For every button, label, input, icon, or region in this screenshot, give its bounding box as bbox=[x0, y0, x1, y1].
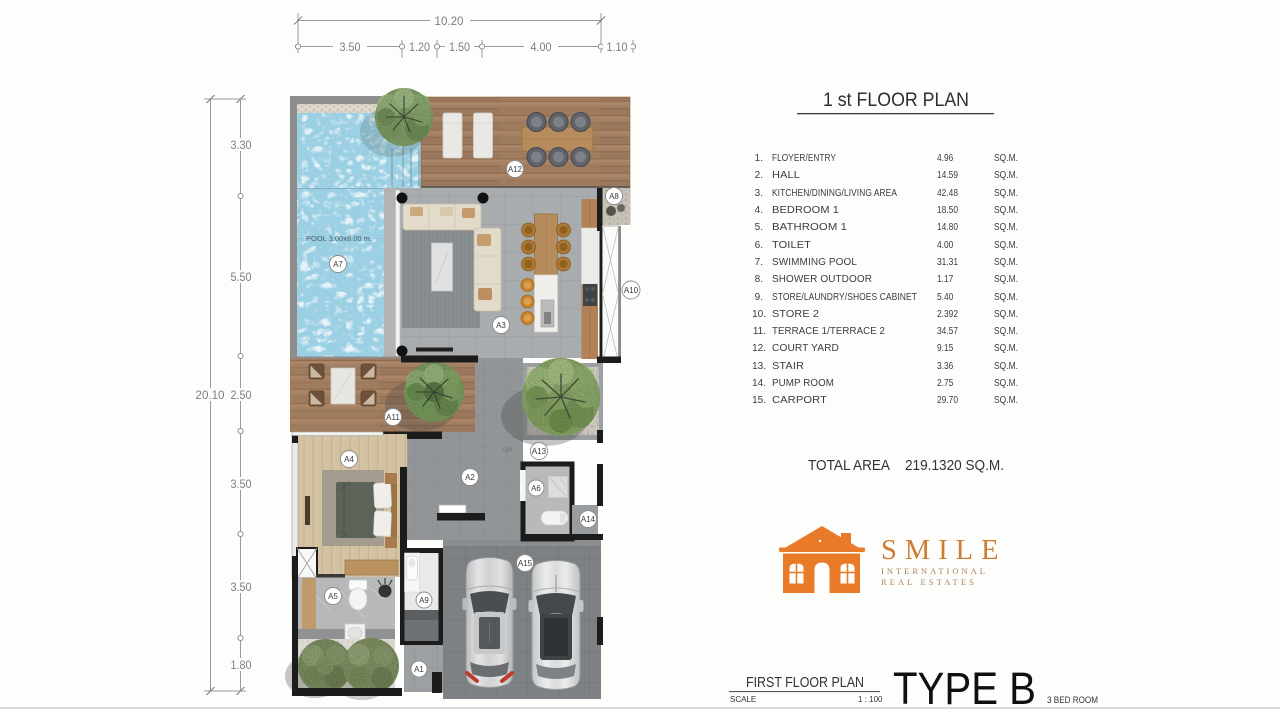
svg-text:REAL ESTATES: REAL ESTATES bbox=[881, 577, 977, 587]
svg-text:POOL 3.00x8.00 m.: POOL 3.00x8.00 m. bbox=[306, 234, 372, 243]
svg-text:1.: 1. bbox=[755, 153, 763, 164]
svg-text:3.50: 3.50 bbox=[340, 42, 361, 54]
svg-text:42.48: 42.48 bbox=[937, 188, 958, 199]
svg-text:7.: 7. bbox=[755, 257, 763, 268]
svg-text:2.: 2. bbox=[755, 170, 763, 181]
svg-text:A6: A6 bbox=[531, 484, 541, 493]
svg-text:3.30: 3.30 bbox=[231, 140, 252, 152]
svg-text:STORE/LAUNDRY/SHOES CABINET: STORE/LAUNDRY/SHOES CABINET bbox=[772, 292, 917, 303]
svg-text:A15: A15 bbox=[518, 559, 533, 568]
svg-text:31.31: 31.31 bbox=[937, 257, 958, 268]
svg-text:COURT YARD: COURT YARD bbox=[772, 343, 839, 354]
svg-text:SWIMMING POOL: SWIMMING POOL bbox=[772, 257, 857, 268]
svg-text:3.36: 3.36 bbox=[937, 361, 954, 372]
svg-text:INTERNATIONAL: INTERNATIONAL bbox=[881, 566, 988, 576]
svg-text:SQ.M.: SQ.M. bbox=[994, 257, 1018, 268]
svg-text:5.40: 5.40 bbox=[937, 292, 954, 303]
svg-text:HALL: HALL bbox=[772, 170, 800, 181]
svg-text:A7: A7 bbox=[333, 260, 343, 269]
svg-text:TYPE B: TYPE B bbox=[893, 663, 1036, 712]
svg-text:CARPORT: CARPORT bbox=[772, 395, 827, 406]
svg-text:3 BED ROOM: 3 BED ROOM bbox=[1047, 695, 1098, 705]
svg-text:4.00: 4.00 bbox=[531, 42, 552, 54]
svg-text:TOILET: TOILET bbox=[772, 240, 811, 251]
svg-text:9.: 9. bbox=[755, 292, 763, 303]
svg-text:TOTAL AREA: TOTAL AREA bbox=[808, 457, 890, 474]
svg-text:SQ.M.: SQ.M. bbox=[994, 326, 1018, 337]
svg-text:SQ.M.: SQ.M. bbox=[994, 153, 1018, 164]
svg-text:A5: A5 bbox=[328, 592, 338, 601]
svg-text:5.: 5. bbox=[755, 222, 763, 233]
svg-text:A11: A11 bbox=[386, 413, 400, 422]
svg-text:1 st FLOOR PLAN: 1 st FLOOR PLAN bbox=[823, 89, 969, 111]
svg-text:SQ.M.: SQ.M. bbox=[994, 222, 1018, 233]
svg-text:SCALE: SCALE bbox=[730, 695, 756, 704]
svg-text:10.: 10. bbox=[752, 309, 766, 320]
svg-text:SQ.M.: SQ.M. bbox=[994, 343, 1018, 354]
svg-text:SQ.M.: SQ.M. bbox=[994, 395, 1018, 406]
svg-text:6.: 6. bbox=[755, 240, 763, 251]
svg-text:12.: 12. bbox=[752, 343, 766, 354]
svg-text:8.: 8. bbox=[755, 274, 763, 285]
svg-text:A10: A10 bbox=[624, 286, 639, 295]
svg-text:STAIR: STAIR bbox=[772, 361, 804, 372]
svg-text:2.75: 2.75 bbox=[937, 378, 954, 389]
svg-text:SQ.M.: SQ.M. bbox=[994, 309, 1018, 320]
svg-text:A8: A8 bbox=[609, 192, 619, 201]
svg-text:SQ.M.: SQ.M. bbox=[994, 378, 1018, 389]
svg-text:4.96: 4.96 bbox=[937, 153, 954, 164]
svg-text:A14: A14 bbox=[581, 515, 596, 524]
svg-text:1.20: 1.20 bbox=[409, 42, 430, 54]
svg-text:4.: 4. bbox=[755, 205, 763, 216]
svg-text:A2: A2 bbox=[465, 473, 475, 482]
svg-text:15.: 15. bbox=[752, 395, 766, 406]
svg-text:14.80: 14.80 bbox=[937, 222, 958, 233]
svg-text:SMILE: SMILE bbox=[881, 535, 1007, 566]
svg-text:14.: 14. bbox=[752, 378, 766, 389]
svg-text:SQ.M.: SQ.M. bbox=[994, 274, 1018, 285]
svg-text:5.50: 5.50 bbox=[231, 272, 252, 284]
svg-text:SQ.M.: SQ.M. bbox=[994, 292, 1018, 303]
svg-text:3.: 3. bbox=[755, 188, 763, 199]
svg-text:A3: A3 bbox=[496, 321, 506, 330]
svg-text:10.20: 10.20 bbox=[435, 16, 464, 28]
svg-text:SQ.M.: SQ.M. bbox=[994, 240, 1018, 251]
svg-text:STORE 2: STORE 2 bbox=[772, 309, 819, 320]
svg-text:14.59: 14.59 bbox=[937, 170, 958, 181]
svg-text:2.50: 2.50 bbox=[231, 390, 252, 402]
svg-text:20.10: 20.10 bbox=[196, 390, 225, 402]
svg-text:FLOYER/ENTRY: FLOYER/ENTRY bbox=[772, 153, 836, 164]
svg-text:1.17: 1.17 bbox=[937, 274, 954, 285]
svg-text:29.70: 29.70 bbox=[937, 395, 958, 406]
svg-text:1.80: 1.80 bbox=[231, 660, 252, 672]
svg-text:A1: A1 bbox=[414, 665, 424, 674]
svg-text:11.: 11. bbox=[753, 326, 766, 337]
svg-text:34.57: 34.57 bbox=[937, 326, 958, 337]
svg-text:UP: UP bbox=[503, 447, 512, 454]
svg-text:4.00: 4.00 bbox=[937, 240, 954, 251]
svg-text:SQ.M.: SQ.M. bbox=[994, 170, 1018, 181]
svg-text:BATHROOM 1: BATHROOM 1 bbox=[772, 222, 847, 233]
svg-text:1 : 100: 1 : 100 bbox=[858, 695, 883, 704]
svg-text:SHOWER OUTDOOR: SHOWER OUTDOOR bbox=[772, 274, 872, 285]
svg-text:219.1320 SQ.M.: 219.1320 SQ.M. bbox=[905, 457, 1004, 474]
svg-text:SQ.M.: SQ.M. bbox=[994, 188, 1018, 199]
svg-text:BEDROOM 1: BEDROOM 1 bbox=[772, 205, 839, 216]
svg-text:A13: A13 bbox=[532, 447, 547, 456]
svg-text:3.50: 3.50 bbox=[231, 479, 252, 491]
svg-text:9.15: 9.15 bbox=[937, 343, 954, 354]
svg-text:1.50: 1.50 bbox=[449, 42, 470, 54]
svg-text:18.50: 18.50 bbox=[937, 205, 958, 216]
svg-text:A4: A4 bbox=[344, 455, 354, 464]
svg-text:A9: A9 bbox=[419, 596, 429, 605]
svg-text:FIRST FLOOR PLAN: FIRST FLOOR PLAN bbox=[746, 675, 864, 691]
svg-text:1.10: 1.10 bbox=[607, 42, 628, 54]
svg-text:SQ.M.: SQ.M. bbox=[994, 205, 1018, 216]
svg-text:2.392: 2.392 bbox=[937, 309, 958, 320]
svg-text:TERRACE 1/TERRACE 2: TERRACE 1/TERRACE 2 bbox=[772, 326, 885, 337]
svg-text:KITCHEN/DINING/LIVING AREA: KITCHEN/DINING/LIVING AREA bbox=[772, 188, 897, 199]
svg-text:13.: 13. bbox=[752, 361, 766, 372]
svg-text:A12: A12 bbox=[508, 165, 523, 174]
svg-text:PUMP ROOM: PUMP ROOM bbox=[772, 378, 834, 389]
svg-text:3.50: 3.50 bbox=[231, 582, 252, 594]
svg-text:SQ.M.: SQ.M. bbox=[994, 361, 1018, 372]
